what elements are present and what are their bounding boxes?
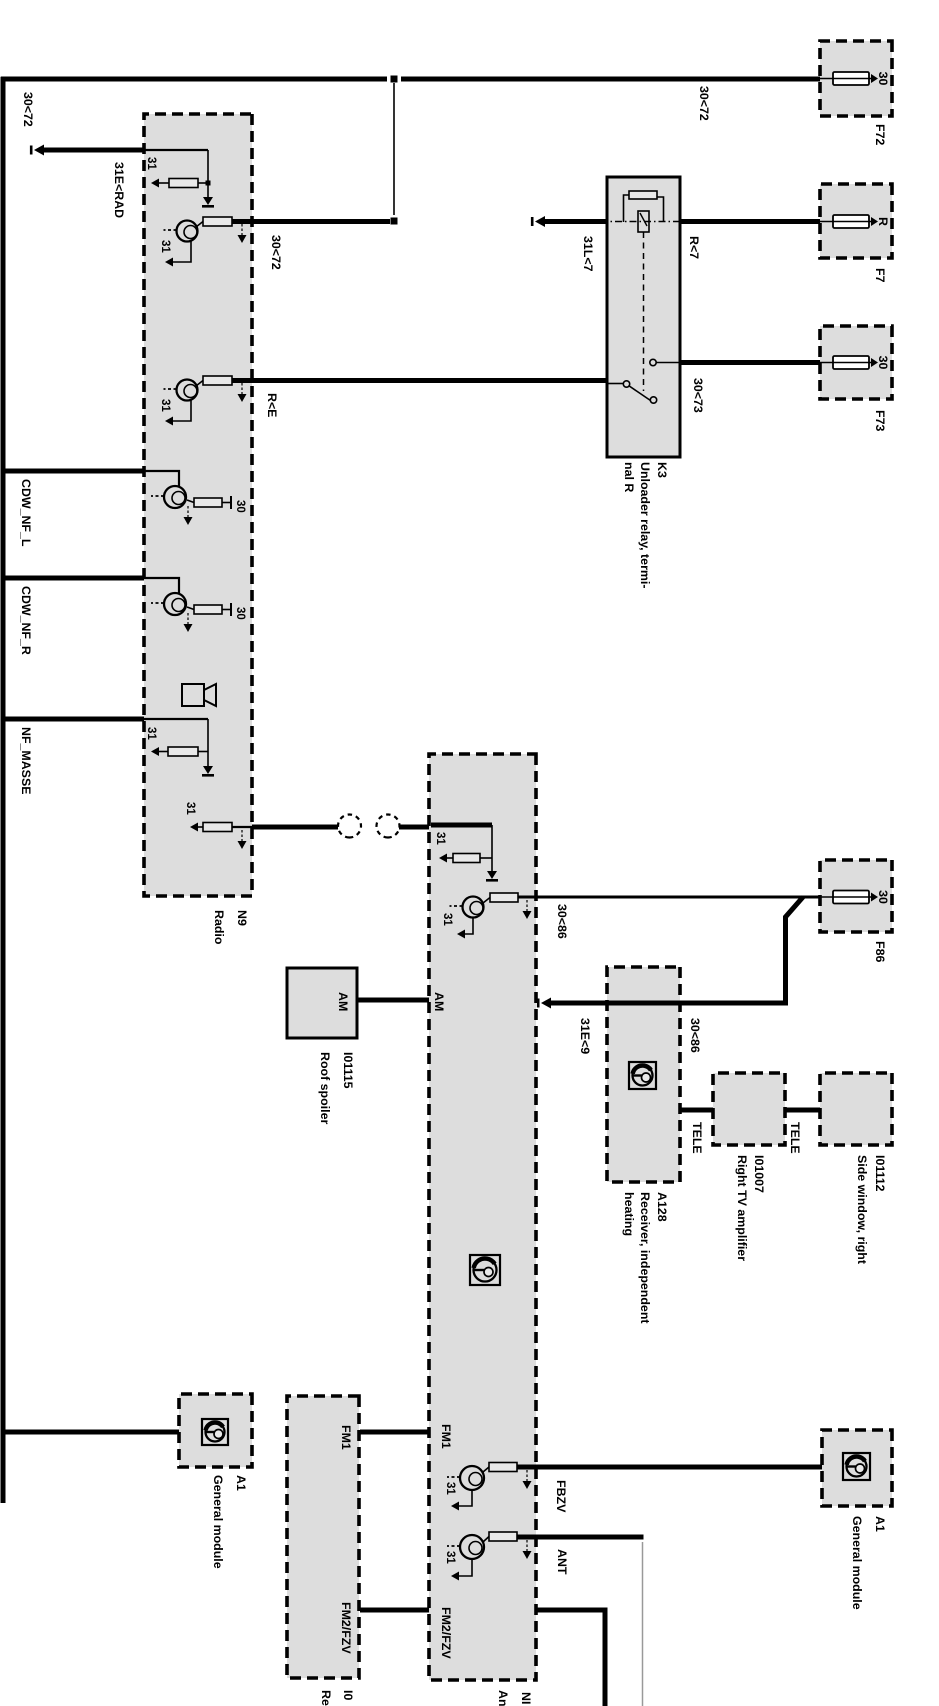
svg-text:Side window, right: Side window, right (855, 1155, 869, 1264)
svg-text:A1: A1 (234, 1475, 248, 1491)
svg-text:F86: F86 (873, 941, 887, 962)
svg-text:I01007: I01007 (752, 1155, 766, 1193)
svg-text:A1: A1 (873, 1516, 887, 1532)
svg-text:Unloader relay, termi-: Unloader relay, termi- (638, 462, 652, 588)
svg-text:Receiver, independent: Receiver, independent (638, 1192, 652, 1324)
svg-text:30<86: 30<86 (555, 904, 569, 939)
svg-text:31: 31 (434, 832, 446, 845)
svg-text:A128: A128 (655, 1192, 669, 1222)
svg-text:Right TV amplifier: Right TV amplifier (735, 1155, 749, 1261)
svg-text:31: 31 (184, 802, 196, 815)
svg-text:R: R (876, 217, 890, 226)
svg-text:nal R: nal R (622, 462, 636, 492)
svg-text:heating: heating (622, 1192, 636, 1236)
svg-text:31: 31 (145, 727, 157, 740)
svg-text:Roof spoiler: Roof spoiler (318, 1052, 332, 1124)
svg-text:31L<7: 31L<7 (581, 236, 595, 272)
svg-text:31: 31 (444, 1482, 456, 1495)
svg-text:An: An (496, 1690, 510, 1706)
svg-text:FM2/FZV: FM2/FZV (339, 1602, 353, 1654)
svg-text:30<72: 30<72 (697, 86, 711, 121)
svg-text:FBZV: FBZV (554, 1480, 568, 1513)
svg-text:Radio: Radio (212, 910, 226, 945)
svg-text:31: 31 (145, 157, 157, 170)
svg-text:F73: F73 (873, 410, 887, 431)
svg-text:31: 31 (159, 240, 171, 253)
svg-text:N9: N9 (235, 910, 249, 926)
svg-text:30<73: 30<73 (691, 378, 705, 413)
svg-text:CDW_NF_L: CDW_NF_L (19, 479, 33, 547)
svg-text:NI: NI (519, 1692, 533, 1704)
svg-text:Re: Re (319, 1690, 333, 1706)
svg-text:30: 30 (876, 72, 890, 86)
svg-text:30: 30 (876, 890, 890, 904)
svg-text:I0: I0 (341, 1690, 355, 1700)
svg-text:FM1: FM1 (439, 1424, 453, 1449)
svg-text:31: 31 (441, 913, 453, 926)
svg-text:31E<RAD: 31E<RAD (112, 162, 126, 218)
svg-text:30<72: 30<72 (21, 92, 35, 127)
svg-text:30<72: 30<72 (269, 235, 283, 270)
svg-text:R<E: R<E (265, 393, 279, 417)
svg-text:F72: F72 (873, 124, 887, 145)
svg-text:I01115: I01115 (341, 1052, 355, 1089)
svg-text:FM2/FZV: FM2/FZV (439, 1607, 453, 1659)
svg-text:TELE: TELE (788, 1122, 802, 1154)
svg-text:F7: F7 (873, 268, 887, 283)
svg-text:31: 31 (444, 1551, 456, 1564)
svg-text:30<86: 30<86 (688, 1018, 702, 1053)
svg-text:31: 31 (159, 399, 171, 412)
svg-text:FM1: FM1 (339, 1425, 353, 1450)
svg-text:AM: AM (336, 992, 350, 1011)
svg-text:30: 30 (876, 356, 890, 370)
svg-text:AM: AM (432, 992, 446, 1011)
svg-text:31E<9: 31E<9 (578, 1018, 592, 1054)
svg-text:30: 30 (234, 500, 246, 513)
svg-text:ANT: ANT (555, 1549, 569, 1575)
svg-text:NF_MASSE: NF_MASSE (19, 727, 33, 794)
svg-text:K3: K3 (655, 462, 669, 478)
svg-text:TELE: TELE (690, 1122, 704, 1154)
svg-text:General module: General module (850, 1516, 864, 1610)
svg-text:I01112: I01112 (873, 1155, 887, 1192)
svg-text:General module: General module (211, 1475, 225, 1569)
svg-text:30: 30 (234, 607, 246, 620)
svg-text:R<7: R<7 (687, 236, 701, 259)
svg-text:CDW_NF_R: CDW_NF_R (19, 586, 33, 655)
